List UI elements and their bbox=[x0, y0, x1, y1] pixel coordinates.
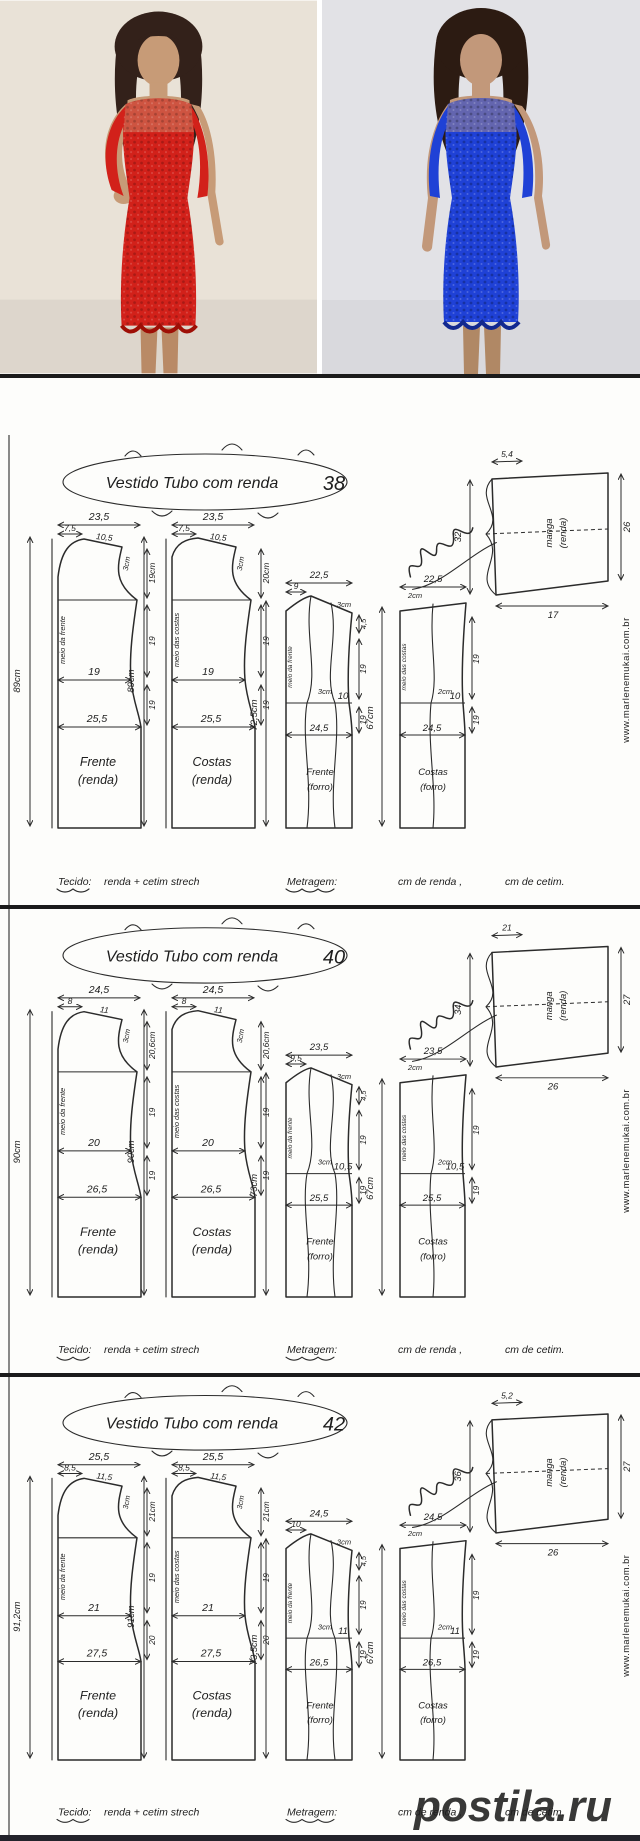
piece-name: manga bbox=[543, 991, 554, 1020]
leg bbox=[141, 328, 158, 374]
side-top-label: 4,5 bbox=[359, 618, 368, 629]
hip-label: 25,5 bbox=[309, 1192, 329, 1203]
hip-label: 26,5 bbox=[200, 1184, 222, 1195]
piece-type: (forro) bbox=[420, 1251, 446, 1262]
piece-front-lining: 73cm 23,5 9,5 3cm 3cm 10,5 25,5 4,5 19 bbox=[248, 1041, 368, 1297]
fold-label: meio das costas bbox=[401, 1114, 408, 1161]
waist-label: 21 bbox=[201, 1603, 214, 1614]
fold-label: meio da frente bbox=[287, 1117, 294, 1158]
drop-label: 3cm bbox=[235, 1028, 246, 1043]
hip-label: 24,5 bbox=[422, 723, 442, 734]
piece-name: Costas bbox=[418, 767, 448, 778]
slope-label: 11,5 bbox=[210, 1471, 227, 1483]
leg bbox=[484, 326, 501, 374]
armhole-depth-label: 21cm bbox=[261, 1501, 271, 1522]
fold-label: meio da frente bbox=[58, 1088, 67, 1135]
fold-label: meio da frente bbox=[58, 1553, 67, 1600]
scanned-pattern-page: Vestido Tubo com renda 38 89cm 23,5 7,5 … bbox=[0, 0, 640, 1841]
face bbox=[138, 34, 180, 86]
neck-label: 9 bbox=[294, 581, 299, 591]
tecido-label: Tecido: bbox=[58, 1808, 92, 1819]
piece-back-lining: 67cm 23,5 2cm 2cm 10,5 25,5 19 19 meio d… bbox=[364, 1045, 481, 1297]
bottom-border-strip bbox=[0, 1835, 640, 1841]
pattern-sheet: Vestido Tubo com renda 40 90cm 24,5 8 11… bbox=[0, 909, 640, 1373]
width-label: 24,5 bbox=[202, 985, 224, 996]
fold-label: meio das costas bbox=[401, 1579, 408, 1625]
piece-name: Costas bbox=[193, 1689, 232, 1703]
tecido-value: renda + cetim strech bbox=[104, 876, 200, 888]
sleeve-hem-label: 27 bbox=[622, 1461, 632, 1473]
shoulder-label: 8,5 bbox=[178, 1463, 190, 1473]
waist-label: 19 bbox=[88, 666, 100, 678]
fold-label: meio da frente bbox=[287, 1582, 294, 1623]
metragem-renda-fill: cm de renda , bbox=[398, 1345, 462, 1356]
pattern-sheet: Vestido Tubo com renda 42 91,2cm 25,5 8,… bbox=[0, 1377, 640, 1835]
fold-label: meio da frente bbox=[58, 616, 67, 664]
piece-name: manga bbox=[544, 1458, 554, 1486]
width-label: 22,5 bbox=[309, 570, 329, 581]
slope-label: 11,5 bbox=[96, 1471, 113, 1483]
notch-label: 2cm bbox=[407, 1529, 422, 1538]
waist-label: 10,5 bbox=[446, 1161, 465, 1172]
height-label: 89cm bbox=[12, 669, 23, 692]
face bbox=[460, 34, 502, 86]
side-lower-label: 19 bbox=[471, 1185, 481, 1195]
piece-type: (forro) bbox=[307, 1251, 333, 1262]
height-label: 67cm bbox=[365, 706, 376, 729]
side-lower-label: 20 bbox=[147, 1635, 157, 1646]
metragem-renda-fill: cm de renda , bbox=[398, 876, 462, 888]
sleeve-length-label: 26 bbox=[547, 1081, 559, 1092]
side-upper-label: 19 bbox=[358, 1135, 368, 1145]
hip-label: 26,5 bbox=[86, 1184, 108, 1195]
shoulder-label: 8 bbox=[68, 996, 73, 1006]
height-label: 90cm bbox=[11, 1140, 22, 1163]
width-label: 25,5 bbox=[202, 1452, 224, 1463]
notch-label: 2cm bbox=[407, 1063, 422, 1072]
sleeve-length-label: 17 bbox=[548, 610, 559, 621]
hip-label: 25,5 bbox=[86, 713, 108, 725]
fabric-footer: Tecido: renda + cetim strech Metragem: c… bbox=[57, 1345, 564, 1360]
piece-type: (renda) bbox=[78, 1243, 118, 1257]
princess-seam bbox=[330, 1075, 336, 1297]
armhole-depth-label: 19cm bbox=[147, 563, 157, 584]
fold-label: meio das costas bbox=[172, 1550, 181, 1603]
lace-texture bbox=[443, 98, 518, 322]
title-oval: Vestido Tubo com renda 40 bbox=[63, 918, 347, 991]
armhole-depth-label: 20,6cm bbox=[261, 1031, 271, 1059]
waist-label: 20 bbox=[87, 1138, 100, 1149]
dart-label: 3cm bbox=[318, 1158, 332, 1167]
height-label: 89cm bbox=[126, 669, 137, 692]
height-label: 73,5cm bbox=[249, 1635, 259, 1665]
armhole-depth-label: 20cm bbox=[261, 563, 271, 585]
piece-type: (forro) bbox=[420, 1715, 446, 1725]
side-lower-label: 19 bbox=[471, 715, 481, 725]
fold-label: meio das costas bbox=[401, 643, 408, 691]
metragem-cetim-fill: cm de cetim. bbox=[505, 876, 565, 888]
section-title: Vestido Tubo com renda bbox=[106, 948, 278, 965]
piece-type: (forro) bbox=[307, 1715, 333, 1725]
slope-label: 10,5 bbox=[210, 531, 228, 543]
piece-type: (renda) bbox=[78, 773, 118, 787]
piece-type: (renda) bbox=[558, 518, 569, 549]
drop-label: 3cm bbox=[121, 1495, 132, 1510]
hip-label: 25,5 bbox=[200, 713, 222, 725]
piece-sleeve: manga (renda) 5,4 32 26 17 bbox=[453, 449, 633, 621]
piece-name: Costas bbox=[418, 1700, 448, 1710]
piece-back-lining: 67cm 22,5 2cm 2cm 10 24,5 19 19 meio das… bbox=[365, 574, 481, 828]
shoulder-label: 8 bbox=[182, 996, 187, 1006]
signature-scribble bbox=[397, 1455, 499, 1530]
hip-label: 27,5 bbox=[86, 1649, 108, 1660]
section-size: 40 bbox=[323, 946, 345, 968]
hip-label: 26,5 bbox=[309, 1658, 329, 1668]
side-upper-label: 19 bbox=[358, 1600, 368, 1610]
piece-type: (renda) bbox=[557, 991, 568, 1021]
width-label: 23,5 bbox=[309, 1041, 329, 1052]
piece-back-lace: 91cm 25,5 8,5 11,5 3cm 21 27,5 21cm 19 bbox=[126, 1452, 271, 1760]
sleeve-top-label: 21 bbox=[501, 923, 511, 933]
section-title: Vestido Tubo com renda bbox=[106, 475, 279, 492]
side-top-label: 4,5 bbox=[359, 1090, 368, 1101]
section-size: 38 bbox=[323, 473, 345, 495]
side-lower-label: 19 bbox=[147, 1171, 157, 1181]
height-label: 90cm bbox=[125, 1140, 136, 1163]
piece-name: Frente bbox=[306, 767, 333, 778]
title-oval: Vestido Tubo com renda 38 bbox=[63, 444, 347, 518]
shoulder-label: 7,5 bbox=[178, 523, 190, 533]
hip-label: 26,5 bbox=[422, 1658, 442, 1668]
side-upper-label: 19 bbox=[147, 1573, 157, 1583]
drop-label: 3cm bbox=[235, 1495, 246, 1510]
pattern-section: Vestido Tubo com renda 38 89cm 23,5 7,5 … bbox=[0, 374, 640, 905]
waist-label: 10 bbox=[450, 691, 461, 702]
fold-label: meio das costas bbox=[172, 613, 181, 667]
piece-name: Frente bbox=[306, 1236, 333, 1247]
watermark-text: postila.ru bbox=[413, 1782, 612, 1831]
waist-label: 21 bbox=[87, 1603, 100, 1614]
piece-front-lining: 72,5cm 22,5 9 3cm 3cm 10 24,5 4,5 19 1 bbox=[249, 570, 368, 828]
fold-label: meio da frente bbox=[287, 646, 294, 688]
front-lining-outline bbox=[286, 596, 352, 828]
width-label: 24,5 bbox=[423, 1512, 443, 1522]
princess-seam bbox=[305, 1534, 312, 1760]
hip-label: 25,5 bbox=[422, 1192, 442, 1203]
piece-type: (renda) bbox=[78, 1706, 118, 1720]
piece-name: manga bbox=[544, 518, 555, 547]
width-label: 23,5 bbox=[88, 511, 110, 523]
slope-label: 10,5 bbox=[96, 531, 114, 543]
pattern-sheet: Vestido Tubo com renda 38 89cm 23,5 7,5 … bbox=[0, 435, 640, 905]
waist-label: 20 bbox=[201, 1138, 214, 1149]
photo-blue-dress bbox=[322, 0, 640, 374]
dart-label: 3cm bbox=[318, 1622, 332, 1631]
piece-type: (renda) bbox=[192, 773, 232, 787]
piece-name: Costas bbox=[193, 1225, 232, 1239]
front-lining-outline bbox=[286, 1534, 352, 1760]
piece-name: Costas bbox=[418, 1236, 448, 1247]
princess-seam bbox=[305, 596, 312, 828]
armhole-depth-label: 20,6cm bbox=[147, 1031, 157, 1059]
front-lining-outline bbox=[286, 1068, 352, 1297]
watermark: postila.ru bbox=[388, 1779, 638, 1837]
sleeve-top-label: 5,4 bbox=[501, 449, 513, 459]
side-upper-label: 19 bbox=[358, 664, 368, 674]
piece-name: Costas bbox=[193, 755, 232, 769]
height-label: 91cm bbox=[126, 1605, 136, 1628]
site-url: www.marlenemukai.com.br bbox=[621, 617, 632, 744]
side-lower-label: 19 bbox=[147, 700, 157, 710]
notch-label: 2cm bbox=[407, 591, 422, 600]
princess-seam bbox=[330, 1541, 336, 1760]
piece-type: (renda) bbox=[192, 1243, 232, 1257]
slope-label: 11 bbox=[99, 1004, 109, 1015]
height-label: 91,2cm bbox=[12, 1601, 22, 1631]
dart-label: 3cm bbox=[318, 687, 332, 696]
metragem-label: Metragem: bbox=[287, 1808, 337, 1819]
neck-label: 10 bbox=[291, 1519, 301, 1529]
waist-label: 10,5 bbox=[334, 1161, 353, 1172]
neck-label: 9,5 bbox=[290, 1053, 302, 1063]
dress-photos-row bbox=[0, 0, 640, 374]
hip-label: 24,5 bbox=[309, 723, 329, 734]
waist-label: 10 bbox=[338, 691, 349, 702]
piece-type: (forro) bbox=[420, 782, 446, 793]
metragem-label: Metragem: bbox=[287, 876, 337, 888]
drop-label: 3cm bbox=[121, 1028, 132, 1043]
tecido-label: Tecido: bbox=[58, 876, 92, 888]
shoulder-label: 7,5 bbox=[64, 523, 76, 533]
height-label: 67cm bbox=[365, 1641, 375, 1664]
piece-sleeve: manga (renda) 5,2 36 27 26 bbox=[453, 1391, 632, 1558]
side-upper-label: 19 bbox=[471, 654, 481, 664]
piece-type: (forro) bbox=[307, 782, 333, 793]
piece-type: (renda) bbox=[558, 1458, 568, 1488]
slope-label: 11 bbox=[213, 1004, 223, 1015]
fabric-footer: Tecido: renda + cetim strech Metragem: c… bbox=[57, 876, 565, 892]
width-label: 23,5 bbox=[423, 1045, 443, 1056]
pattern-sections: Vestido Tubo com renda 38 89cm 23,5 7,5 … bbox=[0, 374, 640, 1835]
waist-label: 19 bbox=[202, 666, 214, 678]
tecido-value: renda + cetim strech bbox=[104, 1345, 200, 1356]
princess-seam bbox=[430, 604, 434, 828]
site-url: www.marlenemukai.com.br bbox=[620, 1089, 631, 1214]
metragem-cetim-fill: cm de cetim. bbox=[505, 1345, 564, 1356]
piece-back-lace: 89cm 23,5 7,5 10,5 3cm 19 25,5 20cm 19 bbox=[126, 511, 271, 828]
site-url: www.marlenemukai.com.br bbox=[621, 1555, 631, 1678]
armhole-depth-label: 21cm bbox=[147, 1501, 157, 1522]
side-upper-label: 19 bbox=[147, 636, 157, 646]
side-upper-label: 19 bbox=[147, 1107, 157, 1117]
width-label: 25,5 bbox=[88, 1452, 110, 1463]
drop-label: 3cm bbox=[235, 556, 246, 572]
sleeve-length-label: 26 bbox=[547, 1547, 559, 1557]
piece-name: Frente bbox=[80, 1689, 116, 1703]
pattern-section: Vestido Tubo com renda 42 91,2cm 25,5 8,… bbox=[0, 1373, 640, 1835]
piece-type: (renda) bbox=[192, 1706, 232, 1720]
drop-label: 3cm bbox=[121, 556, 132, 572]
princess-seam bbox=[430, 1542, 434, 1760]
tecido-label: Tecido: bbox=[58, 1345, 92, 1356]
leg bbox=[161, 328, 178, 374]
piece-name: Frente bbox=[80, 755, 116, 769]
waist-label: 11 bbox=[338, 1626, 348, 1636]
side-upper-label: 19 bbox=[471, 1125, 481, 1135]
height-label: 72,5cm bbox=[249, 699, 260, 730]
signature-scribble bbox=[397, 515, 499, 592]
waist-label: 11 bbox=[450, 1626, 460, 1636]
section-title: Vestido Tubo com renda bbox=[106, 1416, 279, 1433]
photo-red-dress bbox=[0, 0, 317, 374]
lace-texture bbox=[121, 98, 196, 325]
width-label: 22,5 bbox=[423, 574, 443, 585]
piece-back-lining: 67cm 24,5 2cm 2cm 11 26,5 19 19 meio das… bbox=[365, 1512, 481, 1760]
pattern-section: Vestido Tubo com renda 40 90cm 24,5 8 11… bbox=[0, 905, 640, 1373]
piece-front-lining: 73,5cm 24,5 10 3cm 3cm 11 26,5 4,5 19 bbox=[249, 1508, 368, 1760]
side-top-label: 4,5 bbox=[359, 1555, 368, 1566]
height-label: 73cm bbox=[248, 1174, 259, 1197]
sleeve-hem-label: 27 bbox=[621, 994, 632, 1006]
fold-label: meio das costas bbox=[172, 1084, 181, 1138]
shoulder-label: 8,5 bbox=[64, 1463, 76, 1473]
sleeve-top-label: 5,2 bbox=[501, 1391, 513, 1401]
side-lower-label: 19 bbox=[471, 1650, 481, 1660]
signature-scribble bbox=[397, 988, 499, 1064]
princess-seam bbox=[305, 1068, 312, 1297]
leg bbox=[463, 326, 480, 374]
width-label: 24,5 bbox=[309, 1508, 329, 1518]
sleeve-hem-label: 26 bbox=[622, 521, 633, 533]
width-label: 24,5 bbox=[88, 985, 110, 996]
title-oval: Vestido Tubo com renda 42 bbox=[63, 1386, 347, 1458]
height-label: 67cm bbox=[364, 1177, 375, 1200]
princess-seam bbox=[430, 1076, 434, 1297]
metragem-label: Metragem: bbox=[287, 1345, 337, 1356]
piece-name: Frente bbox=[80, 1225, 116, 1239]
hip-label: 27,5 bbox=[200, 1649, 222, 1660]
piece-name: Frente bbox=[306, 1700, 333, 1710]
tecido-value: renda + cetim strech bbox=[104, 1808, 200, 1819]
sleeve-cap-label: 34 bbox=[452, 1004, 463, 1014]
sleeve-cap-label: 36 bbox=[453, 1470, 463, 1481]
section-size: 42 bbox=[323, 1414, 345, 1436]
sleeve-cap-label: 32 bbox=[453, 531, 464, 542]
piece-sleeve: manga (renda) 21 34 27 26 bbox=[452, 923, 632, 1092]
princess-seam bbox=[330, 603, 336, 828]
side-upper-label: 19 bbox=[471, 1590, 481, 1600]
width-label: 23,5 bbox=[202, 511, 224, 523]
